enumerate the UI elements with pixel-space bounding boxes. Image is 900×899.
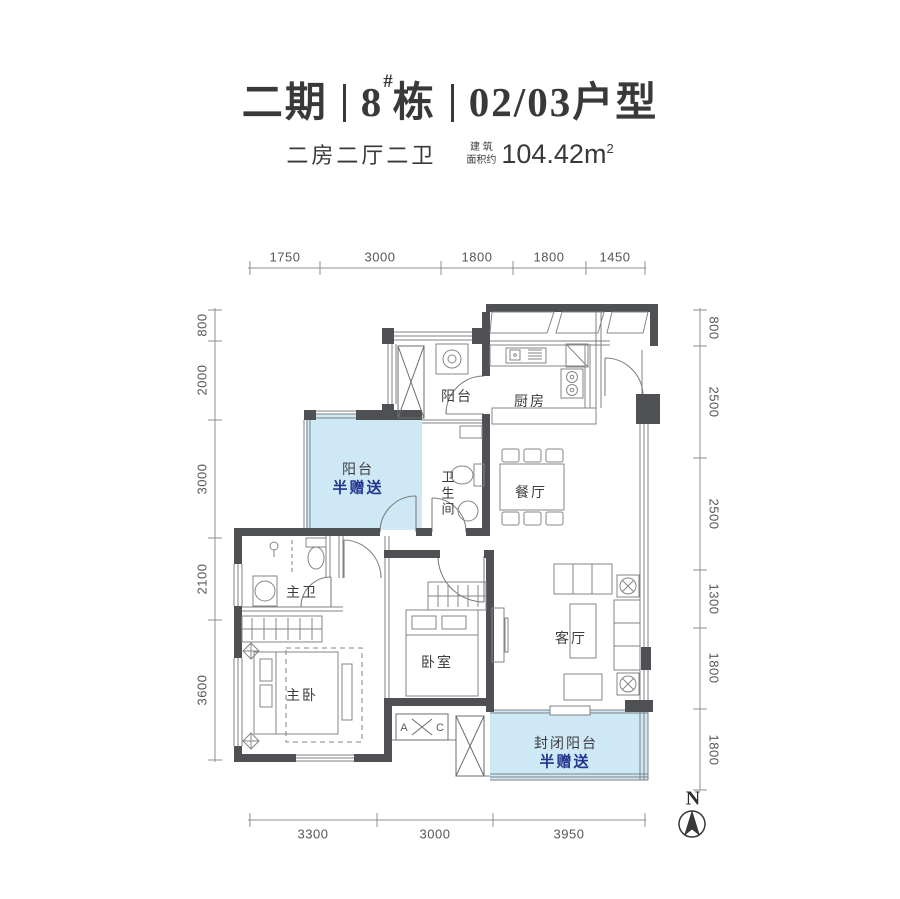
bay-window-panes — [490, 312, 648, 333]
shower-head — [270, 542, 278, 550]
washer — [436, 344, 468, 374]
north-compass — [679, 810, 705, 837]
dim-left-1: 800 — [195, 313, 210, 336]
sink — [255, 581, 275, 601]
dim-right-1: 800 — [707, 316, 722, 339]
dim-left-3: 3000 — [195, 464, 210, 495]
kitchen-furniture — [490, 344, 596, 424]
dim-left-5: 3600 — [195, 675, 210, 706]
bedroom-furniture — [406, 582, 486, 696]
windows-and-thin-walls — [234, 312, 648, 780]
ac-symbols — [243, 643, 259, 749]
master-suite-door — [343, 540, 381, 578]
room-label-master-bedroom: 主卧 — [286, 688, 318, 702]
bedroom-door — [438, 556, 484, 602]
room-label-balcony-top: 阳台 — [441, 389, 473, 403]
room-label-dining: 餐厅 — [515, 485, 547, 499]
sink — [458, 501, 478, 521]
toilet — [308, 547, 324, 569]
dim-top-5: 1450 — [600, 250, 631, 265]
bathroom-fixtures — [451, 426, 484, 521]
gift-balcony-tag: 半赠送 — [332, 481, 383, 496]
dim-right-6: 1800 — [707, 735, 722, 766]
dim-top-3: 1800 — [462, 250, 493, 265]
dim-right-3: 2500 — [707, 499, 722, 530]
dim-left-2: 2000 — [195, 365, 210, 396]
enclosed-balcony-label: 封闭阳台 — [534, 736, 598, 750]
room-label-bathroom: 卫生间 — [441, 470, 454, 518]
armchair — [564, 674, 602, 700]
sofa — [554, 564, 612, 594]
room-label-living: 客厅 — [555, 631, 587, 645]
sofa-chaise — [614, 600, 640, 670]
dim-right-5: 1800 — [707, 653, 722, 684]
tv — [505, 618, 508, 652]
room-label-master-bath: 主卫 — [286, 585, 318, 599]
dim-bottom-1: 3300 — [298, 827, 329, 842]
dim-left-4: 2100 — [195, 564, 210, 595]
dim-right-4: 1300 — [707, 584, 722, 615]
north-label: N — [686, 788, 700, 811]
dim-top-4: 1800 — [534, 250, 565, 265]
dim-bottom-2: 3000 — [420, 827, 451, 842]
dim-bottom-3: 3950 — [554, 827, 585, 842]
ac-letter-a: A — [400, 722, 408, 734]
dim-right-2: 2500 — [707, 387, 722, 418]
dim-top-2: 3000 — [365, 250, 396, 265]
floorplan-drawing: A C — [0, 0, 900, 899]
gift-balcony-label: 阳台 — [342, 462, 374, 476]
master-bedroom-furniture — [242, 616, 362, 742]
room-label-bedroom: 卧室 — [421, 655, 453, 669]
floorplan-page: 二期 8#栋 02/03户型 二房二厅二卫 建 筑 面积约 104.42m2 — [0, 0, 900, 899]
stove — [561, 369, 583, 398]
ac-letter-c: C — [436, 722, 444, 734]
dim-top-1: 1750 — [270, 250, 301, 265]
room-label-kitchen: 厨房 — [514, 394, 546, 408]
entry-door — [605, 358, 643, 396]
north-needle — [684, 810, 700, 836]
enclosed-balcony-tag: 半赠送 — [539, 755, 590, 770]
